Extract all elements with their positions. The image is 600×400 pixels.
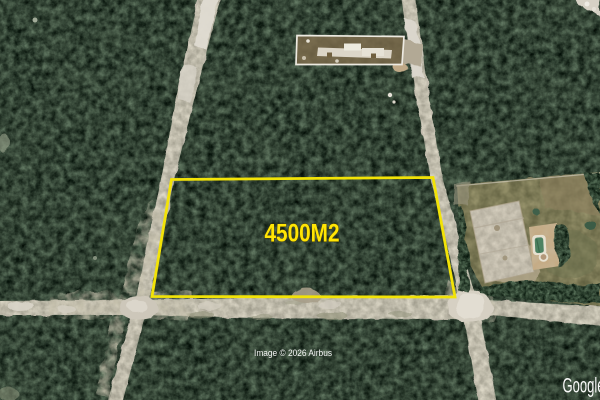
svg-text:Image © 2026 Airbus: Image © 2026 Airbus xyxy=(254,348,332,358)
svg-text:4500M2: 4500M2 xyxy=(265,220,340,248)
svg-text:Google: Google xyxy=(563,375,600,398)
